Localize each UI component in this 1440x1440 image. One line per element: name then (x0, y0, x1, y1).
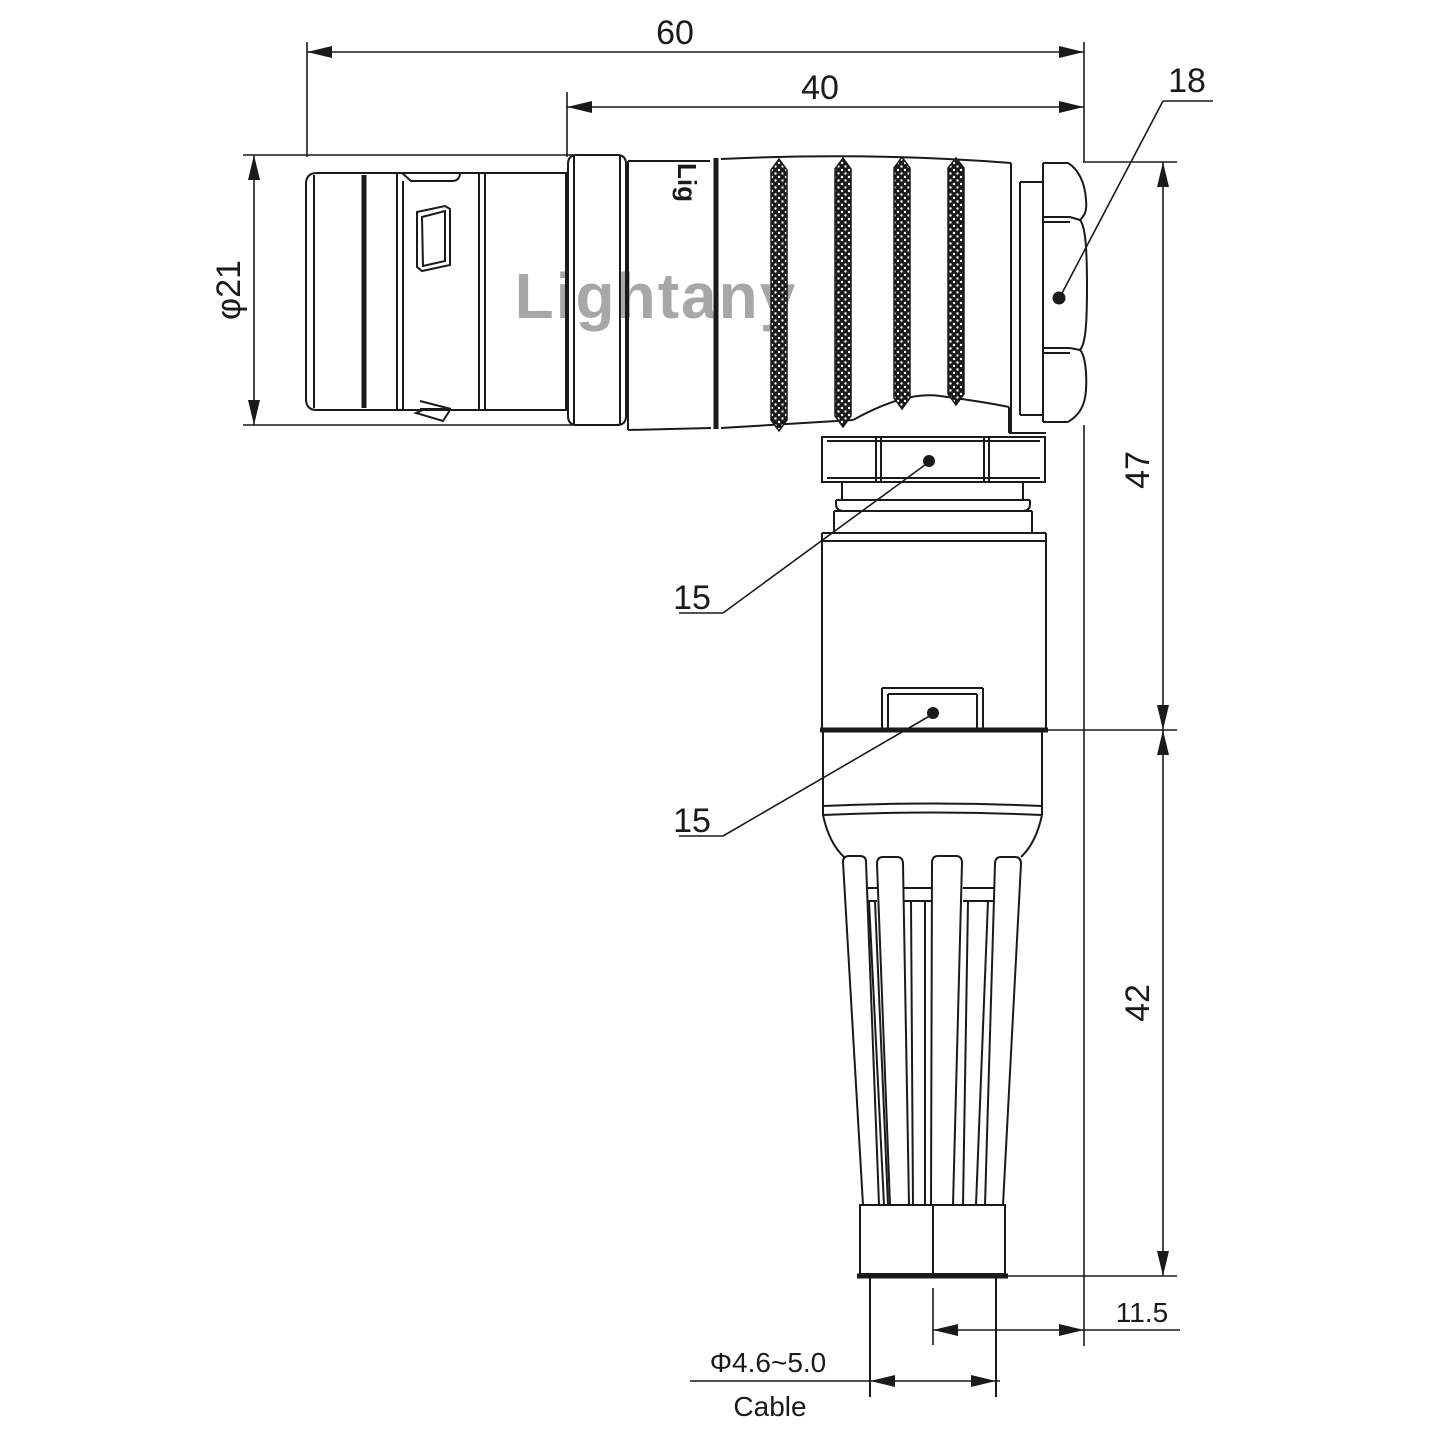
dim-label-nut-across-flats: 18 (1168, 62, 1206, 100)
technical-drawing-page: Lightany (0, 0, 1440, 1440)
dim-rear-length: 40 (567, 69, 1084, 157)
end-collar (857, 1205, 1008, 1276)
connector-side-view: Lig (306, 155, 1087, 1397)
dim-overall-length: 60 (307, 14, 1084, 162)
leader-body-flats: 15 (673, 707, 939, 840)
dim-label-front-diameter: φ21 (210, 260, 248, 320)
dim-label-cable: Cable (733, 1391, 806, 1422)
dim-upper-height: 47 (1048, 162, 1177, 730)
stepped-rings (834, 482, 1032, 533)
dim-label-cable-offset: 11.5 (1116, 1297, 1168, 1328)
knurl-bands (771, 157, 964, 431)
vertical-body (820, 533, 1048, 730)
leader-coupling-nut-flats: 15 (673, 455, 935, 617)
dim-label-coupling-nut-flats: 15 (673, 579, 711, 617)
body-brand-marking: Lig (672, 163, 702, 202)
leader-nut-across-flats: 18 (1053, 62, 1214, 305)
dim-label-body-flats: 15 (673, 802, 711, 840)
dim-label-upper-height: 47 (1119, 451, 1157, 489)
dim-lower-height: 42 (1006, 730, 1177, 1276)
dim-label-overall-length: 60 (656, 14, 694, 52)
neck-ring (1020, 182, 1043, 415)
dim-cable-offset: 11.5 (933, 425, 1180, 1346)
watermark: Lightany (515, 260, 798, 332)
strain-relief-boot (843, 856, 1021, 1205)
lower-section (823, 732, 1042, 857)
dim-label-rear-length: 40 (801, 69, 839, 107)
dim-label-lower-height: 42 (1119, 984, 1157, 1022)
dim-label-cable-diameter: Φ4.6~5.0 (710, 1347, 827, 1378)
connector-dimension-drawing: Lightany (0, 0, 1440, 1440)
rear-hex-nut (1043, 163, 1087, 422)
dim-cable-diameter: Φ4.6~5.0 Cable (690, 1347, 1000, 1422)
